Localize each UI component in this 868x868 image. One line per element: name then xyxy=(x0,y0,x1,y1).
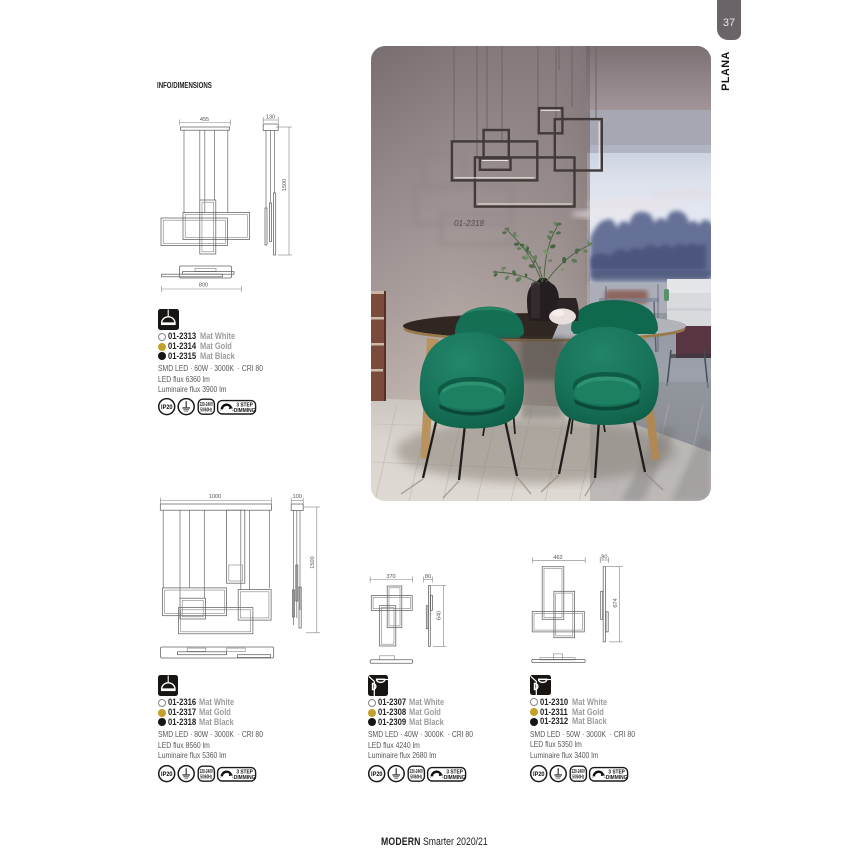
svg-text:1000: 1000 xyxy=(209,494,221,500)
svg-text:674: 674 xyxy=(613,598,619,607)
svg-text:80: 80 xyxy=(601,554,607,560)
svg-text:100: 100 xyxy=(293,494,302,500)
svg-text:DIMMING: DIMMING xyxy=(443,775,465,781)
svg-text:IP20: IP20 xyxy=(371,771,383,778)
svg-text:DIMMING: DIMMING xyxy=(233,775,255,781)
svg-text:DIMMING: DIMMING xyxy=(234,408,256,414)
svg-text:1500: 1500 xyxy=(282,179,288,191)
svg-text:800: 800 xyxy=(199,283,208,289)
svg-text:IP20: IP20 xyxy=(161,404,173,411)
svg-text:IP20: IP20 xyxy=(161,771,173,778)
svg-text:01-2318: 01-2318 xyxy=(454,219,484,228)
svg-text:1500: 1500 xyxy=(310,556,316,568)
svg-text:50/60Hz: 50/60Hz xyxy=(410,775,422,781)
svg-text:640: 640 xyxy=(437,611,443,620)
svg-text:DIMMING: DIMMING xyxy=(606,775,628,781)
svg-text:50/60Hz: 50/60Hz xyxy=(200,775,212,781)
svg-text:50/60Hz: 50/60Hz xyxy=(200,408,212,414)
svg-text:50/60Hz: 50/60Hz xyxy=(572,775,584,781)
svg-text:130: 130 xyxy=(266,115,275,121)
svg-text:80: 80 xyxy=(425,574,431,580)
svg-text:370: 370 xyxy=(386,574,395,580)
svg-text:IP20: IP20 xyxy=(533,771,545,778)
